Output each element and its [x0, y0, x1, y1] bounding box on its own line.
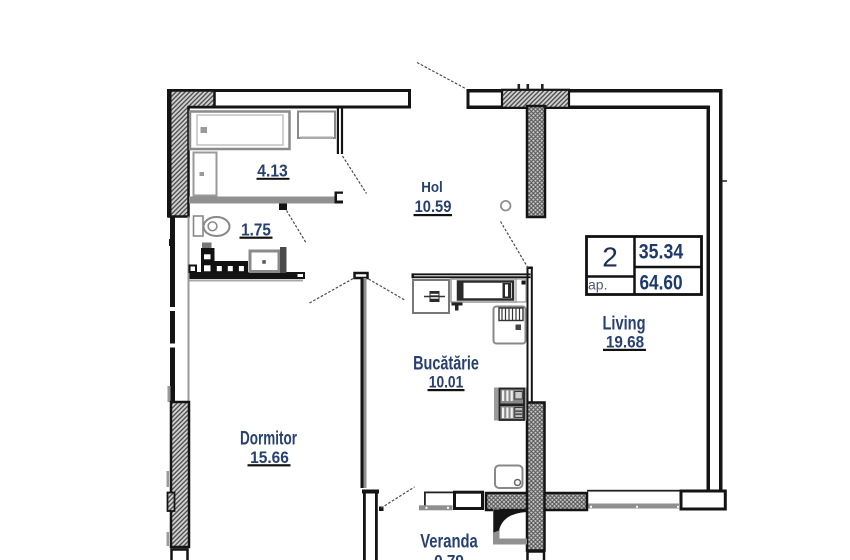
svg-text:64.60: 64.60: [639, 272, 682, 295]
svg-text:ap.: ap.: [588, 277, 607, 293]
svg-text:Dormitor: Dormitor: [240, 428, 297, 449]
svg-text:35.34: 35.34: [639, 240, 684, 264]
svg-text:Living: Living: [602, 313, 645, 334]
svg-text:Veranda: Veranda: [420, 531, 478, 552]
svg-text:2: 2: [602, 242, 618, 273]
svg-text:4.13: 4.13: [257, 160, 287, 180]
svg-text:10.59: 10.59: [415, 198, 452, 216]
svg-text:Bucătărie: Bucătărie: [413, 353, 479, 374]
svg-text:0.79: 0.79: [434, 552, 464, 560]
svg-text:Hol: Hol: [421, 179, 442, 196]
